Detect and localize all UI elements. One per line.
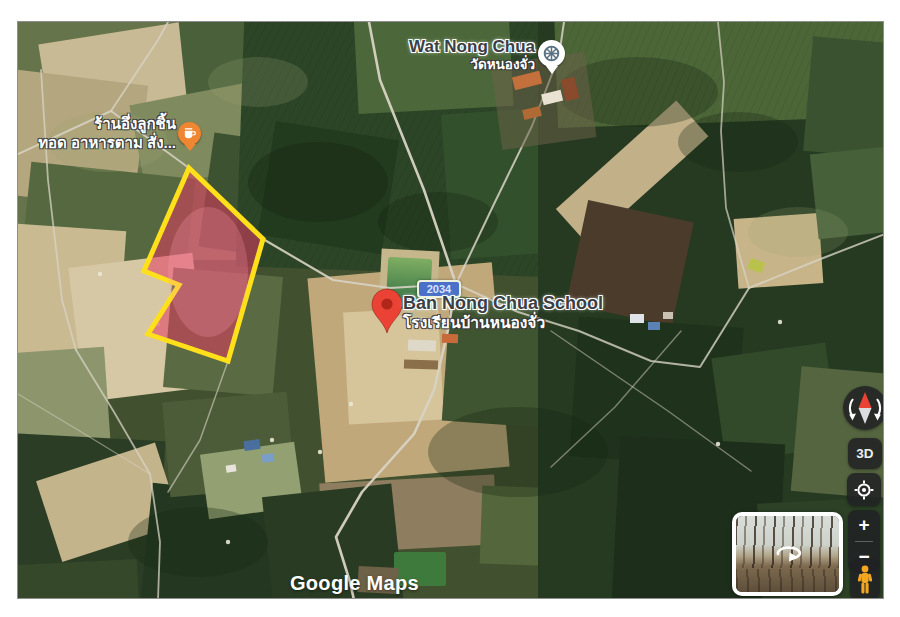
zoom-divider [855, 541, 873, 542]
temple-icon[interactable] [538, 40, 565, 67]
plot-inner-glow [168, 207, 248, 337]
my-location-button[interactable] [847, 473, 881, 506]
restaurant-icon[interactable] [178, 122, 201, 145]
school-map-pin[interactable] [371, 288, 403, 334]
street-view-thumbnail[interactable] [732, 512, 843, 596]
google-maps-logo[interactable]: Google Maps [290, 572, 419, 595]
map-viewport[interactable]: Wat Nong Chua วัดหนองจั่ว ร้านอึ่งลูกชิ้… [17, 21, 884, 599]
3d-label: 3D [856, 446, 873, 461]
3d-view-button[interactable]: 3D [848, 438, 882, 469]
compass-control[interactable] [843, 386, 884, 430]
pegman-button[interactable] [850, 560, 880, 599]
dharma-wheel-icon [542, 44, 561, 63]
pin-inner-dot [381, 298, 392, 309]
my-location-icon [854, 480, 874, 500]
compass-icon [843, 386, 884, 430]
cup-icon [183, 127, 196, 140]
restaurant-icon-pointer [184, 144, 196, 151]
route-badge-2034: 2034 [417, 280, 461, 298]
temple-icon-pointer [546, 66, 558, 74]
zoom-in-button[interactable]: + [848, 512, 880, 538]
rotate-360-icon [770, 540, 806, 562]
page: { "map": { "google_logo": "Google Maps",… [0, 0, 900, 617]
pegman-icon [856, 565, 874, 595]
